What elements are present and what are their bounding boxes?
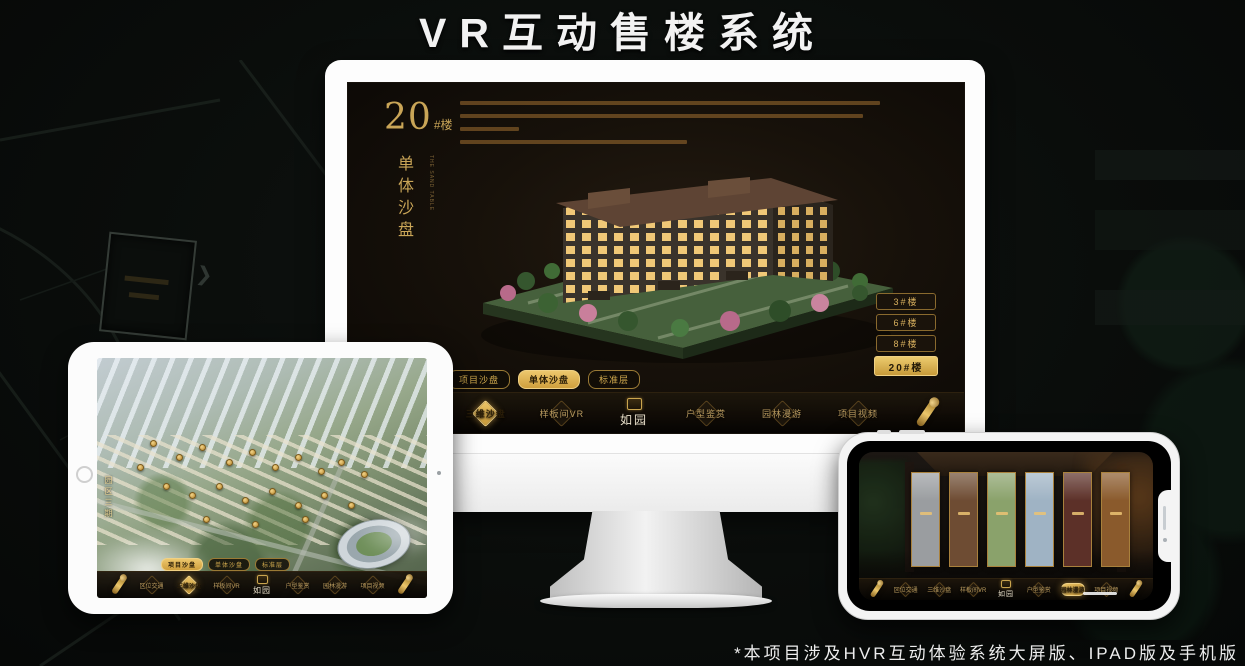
floor-button[interactable]: 6#楼 [876, 314, 936, 331]
mist-overlay [357, 508, 427, 558]
nav-item[interactable]: 园林漫游 [760, 400, 804, 426]
scroll-menu-icon[interactable] [111, 575, 127, 595]
building-marker-icon[interactable] [295, 454, 302, 461]
building-marker-icon[interactable] [137, 464, 144, 471]
ipad-subtab-bar: 项目沙盘单体沙盘标准层 [161, 558, 290, 571]
gallery-panel[interactable] [949, 472, 978, 567]
nav-item[interactable]: 三维沙盘 [464, 400, 508, 426]
description-line [460, 114, 863, 118]
description-line [460, 101, 880, 105]
ipad-home-button[interactable] [76, 466, 93, 483]
ipad-bottom-nav: 区位交通三维沙盘样板间VR 如园 户型鉴赏园林漫游项目视频 [97, 571, 427, 598]
nav-group-right: 户型鉴赏园林漫游项目视频 [275, 576, 395, 594]
app-logo[interactable]: 如园 [620, 398, 648, 428]
phone-device: 区位交通三维沙盘样板间VR 如园 户型鉴赏园林漫游项目视频 [838, 432, 1180, 620]
subtab[interactable]: 项目沙盘 [448, 370, 510, 389]
nav-item[interactable]: 园林漫游 [320, 576, 350, 594]
scroll-menu-icon[interactable] [1129, 581, 1143, 598]
building-marker-icon[interactable] [189, 492, 196, 499]
building-marker-icon[interactable] [302, 516, 309, 523]
building-marker-icon[interactable] [176, 454, 183, 461]
building-marker-icon[interactable] [242, 497, 249, 504]
phone-notch [1158, 490, 1171, 562]
building-marker-icon[interactable] [361, 471, 368, 478]
ipad-screen: 园区三期 项目沙盘单体沙盘标准层 区位交通三维沙盘样板间VR 如园 户型鉴赏园林… [97, 358, 427, 598]
building-marker-icon[interactable] [150, 440, 157, 447]
section-subtitle-vertical: 单体沙盘 [392, 155, 416, 243]
building-marker-icon[interactable] [318, 468, 325, 475]
background-buildings-right [1095, 120, 1245, 440]
building-marker-icon[interactable] [199, 444, 206, 451]
nav-group-right: 户型鉴赏园林漫游项目视频 [652, 400, 912, 426]
phone-bezel: 区位交通三维沙盘样板间VR 如园 户型鉴赏园林漫游项目视频 [847, 441, 1171, 611]
phone-volume-button [877, 430, 891, 434]
building-marker-icon[interactable] [216, 483, 223, 490]
gallery-panel[interactable] [1063, 472, 1092, 567]
nav-item[interactable]: 户型鉴赏 [283, 576, 313, 594]
phone-camera-icon [1163, 538, 1167, 542]
logo-text: 如园 [620, 411, 648, 428]
nav-item[interactable]: 三维沙盘 [174, 576, 204, 594]
building-marker-icon[interactable] [272, 464, 279, 471]
building-sandtable-render [468, 153, 908, 373]
building-marker-icon[interactable] [348, 502, 355, 509]
description-line [460, 127, 519, 131]
subtab[interactable]: 项目沙盘 [161, 558, 203, 571]
subtab[interactable]: 单体沙盘 [518, 370, 580, 389]
building-marker-icon[interactable] [163, 483, 170, 490]
background-plaque [99, 232, 197, 341]
building-marker-icon[interactable] [295, 502, 302, 509]
phone-screen: 区位交通三维沙盘样板间VR 如园 户型鉴赏园林漫游项目视频 [859, 452, 1153, 600]
phone-volume-button [899, 430, 925, 434]
building-marker-icon[interactable] [252, 521, 259, 528]
logo-seal-icon [627, 398, 642, 410]
nav-item[interactable]: 样板间VR [212, 576, 242, 594]
nav-item[interactable]: 户型鉴赏 [684, 400, 728, 426]
monitor-subtab-bar: 项目沙盘单体沙盘标准层 [448, 370, 640, 389]
building-marker-icon[interactable] [338, 459, 345, 466]
gallery-panel[interactable] [987, 472, 1016, 567]
nav-item[interactable]: 园林漫游 [1060, 583, 1086, 597]
floor-button[interactable]: 20#楼 [874, 356, 938, 376]
floor-button-list: 3#楼6#楼8#楼20#楼 [874, 293, 938, 376]
logo-seal-icon [257, 575, 268, 584]
nav-item[interactable]: 区位交通 [893, 583, 919, 597]
app-logo[interactable]: 如园 [253, 575, 271, 596]
scroll-menu-icon[interactable] [915, 398, 938, 427]
nav-item[interactable]: 项目视频 [358, 576, 388, 594]
logo-text: 如园 [998, 589, 1014, 599]
gallery-panel[interactable] [1101, 472, 1130, 567]
nav-item[interactable]: 户型鉴赏 [1026, 583, 1052, 597]
description-text-block [460, 101, 880, 153]
floor-button[interactable]: 3#楼 [876, 293, 936, 310]
nav-item[interactable]: 样板间VR [540, 400, 585, 426]
section-subtitle-english: THE SAND TABLE [428, 155, 434, 211]
logo-text: 如园 [253, 585, 271, 596]
gallery-panel[interactable] [911, 472, 940, 567]
floor-button[interactable]: 8#楼 [876, 335, 936, 352]
phone-speaker-icon [1163, 506, 1166, 530]
building-marker-icon[interactable] [249, 449, 256, 456]
building-number-badge: 20#楼 [384, 97, 453, 138]
app-logo[interactable]: 如园 [998, 580, 1014, 599]
building-marker-icon[interactable] [321, 492, 328, 499]
building-number-suffix: #楼 [434, 118, 453, 132]
nav-item[interactable]: 项目视频 [836, 400, 880, 426]
scroll-menu-icon[interactable] [870, 581, 884, 598]
footnote-caption: *本项目涉及HVR互动体验系统大屏版、IPAD版及手机版 [734, 639, 1239, 664]
subtab[interactable]: 标准层 [588, 370, 640, 389]
page-title: VR互动售楼系统 [0, 0, 1245, 58]
logo-seal-icon [1001, 580, 1011, 588]
monitor-base [540, 594, 772, 608]
building-marker-icon[interactable] [269, 488, 276, 495]
nav-item[interactable]: 三维沙盘 [926, 583, 952, 597]
description-line [460, 140, 687, 144]
nav-item[interactable]: 区位交通 [137, 576, 167, 594]
building-marker-icon[interactable] [203, 516, 210, 523]
subtab[interactable]: 标准层 [255, 558, 290, 571]
ipad-device: 园区三期 项目沙盘单体沙盘标准层 区位交通三维沙盘样板间VR 如园 户型鉴赏园林… [68, 342, 453, 614]
subtab[interactable]: 单体沙盘 [208, 558, 250, 571]
background-chevron: ❯ [194, 261, 214, 288]
scroll-menu-icon[interactable] [397, 575, 413, 595]
home-indicator[interactable] [1083, 592, 1117, 595]
building-marker-icon[interactable] [226, 459, 233, 466]
nav-item[interactable]: 样板间VR [960, 583, 986, 597]
area-label-vertical: 园区三期 [103, 476, 114, 520]
nav-group-left: 区位交通三维沙盘样板间VR [885, 583, 994, 597]
marketing-poster: ❯ VR互动售楼系统 20#楼 单体沙盘 THE SAND TABLE [0, 0, 1245, 666]
ipad-camera-icon [437, 471, 441, 475]
building-number: 20 [384, 97, 432, 138]
gallery-panel-row [911, 472, 1130, 567]
gallery-panel[interactable] [1025, 472, 1054, 567]
nav-group-left: 区位交通三维沙盘样板间VR [129, 576, 249, 594]
phone-bottom-nav: 区位交通三维沙盘样板间VR 如园 户型鉴赏园林漫游项目视频 [859, 578, 1153, 600]
